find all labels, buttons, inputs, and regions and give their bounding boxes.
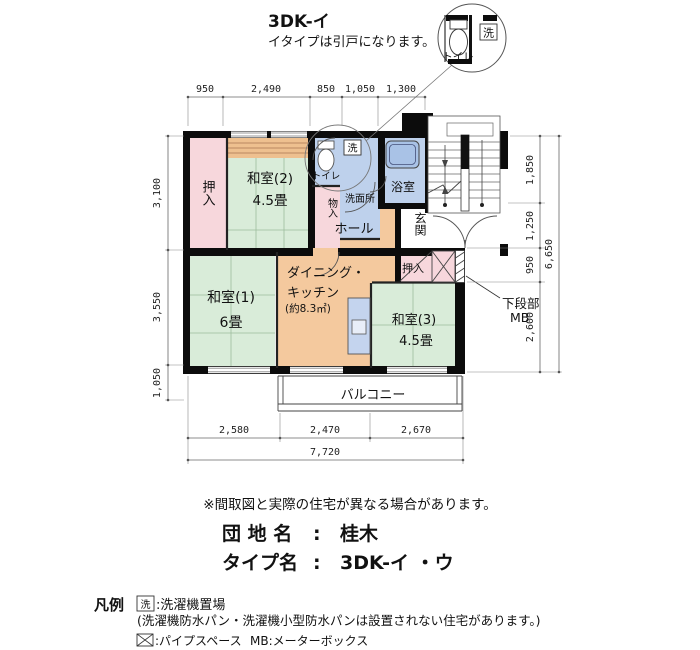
danchi-sep: :: [313, 523, 321, 545]
dim-top-3: 850: [317, 84, 335, 95]
legend-washer-text: :洗濯機置場: [156, 598, 225, 613]
dimension-left: 3,100 3,550 1,050: [152, 135, 184, 402]
dim-right-4: 2,600: [525, 312, 536, 342]
dim-bottom-2: 2,470: [310, 425, 340, 436]
page-title: 3DK-イ: [268, 12, 330, 32]
legend-heading: 凡例: [94, 596, 124, 614]
legend-mb-text: MB:メーターボックス: [250, 634, 368, 648]
floorplan-drawing: 洗 トイレ 押入 和室(2) 4.5畳 トイレ 洗 物入 洗面所 浴室 ホール …: [0, 0, 700, 650]
label-washer-box: 洗: [348, 143, 358, 155]
label-washitsu-1: 和室(1): [207, 289, 255, 306]
dim-left-1: 3,100: [152, 178, 163, 208]
label-monoire: 物入: [326, 197, 338, 218]
label-mb-line1: 下段部: [502, 296, 540, 311]
dim-bottom-3: 2,670: [401, 425, 431, 436]
label-dk-size: (約8.3㎡): [285, 302, 331, 315]
label-oshiire-1: 押入: [200, 180, 216, 206]
dim-left-3: 1,050: [152, 368, 163, 398]
callout-washer-label: 洗: [483, 27, 494, 40]
label-washitsu-3-size: 4.5畳: [399, 334, 433, 349]
page-subtitle: イタイプは引戸になります。: [268, 35, 435, 50]
dim-right-1: 1,850: [525, 155, 536, 185]
callout-toilet-icon: [450, 20, 468, 55]
dim-left-2: 3,550: [152, 292, 163, 322]
dim-top-5: 1,300: [386, 84, 416, 95]
legend-pipe-space-icon: [137, 634, 153, 646]
label-dk-line1: ダイニング・: [287, 266, 365, 281]
legend-washer-note: (洗濯機防水パン・洗濯機小型防水パンは設置されない住宅があります。): [137, 613, 541, 628]
disclaimer-note: ※間取図と実際の住宅が異なる場合があります。: [203, 497, 496, 513]
pipe-space-icon: [432, 251, 455, 282]
label-toilet: トイレ: [312, 171, 341, 182]
dim-right-2: 1,250: [525, 211, 536, 241]
label-washitsu-2-size: 4.5畳: [253, 193, 288, 209]
label-balcony: バルコニー: [341, 388, 406, 403]
type-label: タイプ名: [222, 551, 298, 574]
dim-top-2: 2,490: [251, 84, 281, 95]
label-washitsu-3: 和室(3): [392, 312, 436, 328]
dim-top-1: 950: [196, 84, 214, 95]
dimension-bottom: 2,580 2,470 2,670 7,720: [187, 376, 465, 464]
dim-right-total: 6,650: [544, 239, 555, 269]
toilet-icon: [318, 141, 334, 171]
legend-washer-symbol: 洗: [141, 599, 151, 611]
mb-leader-line: [466, 276, 500, 298]
label-dk-line2: キッチン: [287, 286, 339, 301]
title-block: 3DK-イ イタイプは引戸になります。: [268, 12, 435, 50]
danchi-label: 団 地 名: [222, 522, 292, 545]
label-genkan: 玄関: [413, 211, 427, 236]
bottom-windows: [208, 367, 447, 373]
stairs-icon: [428, 116, 500, 248]
label-hall: ホール: [334, 222, 373, 237]
floorplan-page: 洗 トイレ 押入 和室(2) 4.5畳 トイレ 洗 物入 洗面所 浴室 ホール …: [0, 0, 700, 650]
type-value: 3DK-イ ・ウ: [340, 552, 454, 574]
danchi-value: 桂木: [339, 522, 379, 545]
dim-bottom-1: 2,580: [219, 425, 249, 436]
bathtub-icon: [386, 141, 419, 168]
dim-bottom-total: 7,720: [310, 447, 340, 458]
legend-block: 凡例 洗 :洗濯機置場 (洗濯機防水パン・洗濯機小型防水パンは設置されない住宅が…: [94, 596, 541, 648]
footer-block: ※間取図と実際の住宅が異なる場合があります。 団 地 名 : 桂木 タイプ名 :…: [203, 497, 496, 574]
label-oshiire-3: 押入: [402, 261, 424, 275]
meter-box-icon: [456, 251, 465, 283]
kitchen-sink-icon: [348, 298, 370, 354]
label-washitsu-2: 和室(2): [247, 170, 293, 187]
label-bath: 浴室: [391, 179, 415, 194]
dim-top-4: 1,050: [345, 84, 375, 95]
label-senmenjo: 洗面所: [345, 193, 375, 205]
legend-ps-text: :パイプスペース: [155, 634, 242, 648]
type-sep: :: [313, 552, 321, 574]
dim-right-3: 950: [525, 256, 536, 274]
room-washitsu-1: [188, 252, 275, 368]
callout-toilet-label: トイレ: [442, 51, 474, 63]
label-washitsu-1-size: 6畳: [220, 315, 243, 331]
